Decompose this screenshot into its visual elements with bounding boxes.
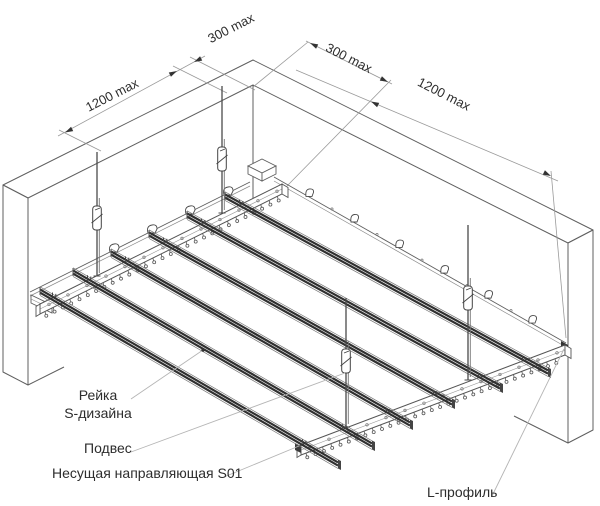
- left-wall-end-cap: [3, 185, 28, 385]
- callout-rail-s-design: Рейка S-дизайна: [46, 387, 150, 423]
- leader-dot: [201, 348, 204, 351]
- callout-rail-line1: Рейка: [46, 387, 150, 405]
- dim-label-1200-right: 1200 max: [415, 74, 473, 114]
- dim-label-1200-left: 1200 max: [83, 75, 141, 115]
- dim-label-300-right: 300 max: [323, 40, 375, 76]
- callout-carrier: Несущая направляющая S01: [52, 465, 242, 483]
- callout-rail-line2: S-дизайна: [46, 405, 150, 423]
- isometric-drawing: 1200 max 300 max 300 max 1200 max: [0, 0, 600, 506]
- callout-hanger: Подвес: [84, 440, 132, 458]
- callout-l-profile: L-профиль: [427, 484, 497, 502]
- right-wall-end-cap: [568, 230, 593, 443]
- dim-label-300-left: 300 max: [205, 10, 257, 46]
- ceiling-installation-diagram: 1200 max 300 max 300 max 1200 max Рейка …: [0, 0, 600, 506]
